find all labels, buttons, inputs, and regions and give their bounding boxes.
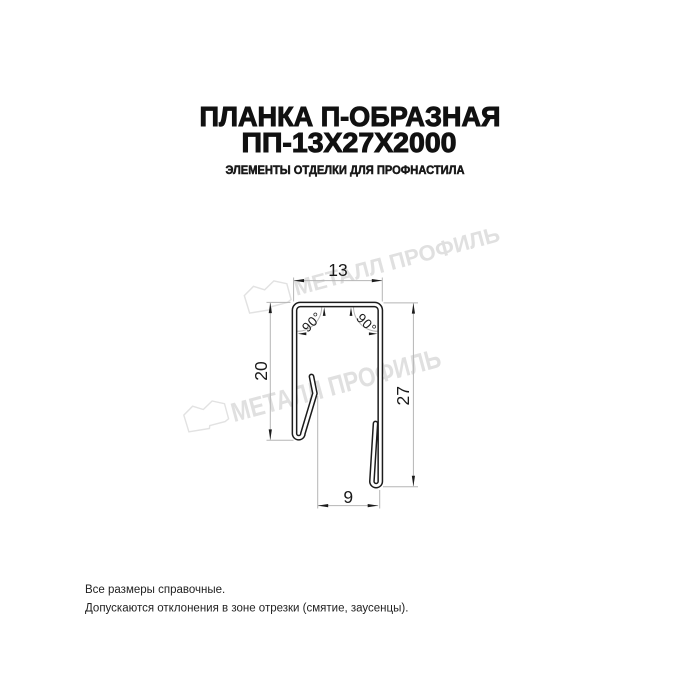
svg-text:ЭЛЕМЕНТЫ ОТДЕЛКИ ДЛЯ ПРОФНАСТИ: ЭЛЕМЕНТЫ ОТДЕЛКИ ДЛЯ ПРОФНАСТИЛА [226, 165, 465, 177]
svg-text:13: 13 [328, 260, 347, 280]
svg-text:20: 20 [251, 361, 271, 381]
svg-text:27: 27 [393, 386, 413, 405]
svg-text:Все размеры справочные.: Все размеры справочные. [85, 584, 225, 596]
svg-text:ПП-13Х27Х2000: ПП-13Х27Х2000 [242, 127, 457, 158]
svg-text:9: 9 [343, 487, 353, 507]
svg-text:Допускаются отклонения в зоне: Допускаются отклонения в зоне отрезки (с… [85, 603, 408, 615]
